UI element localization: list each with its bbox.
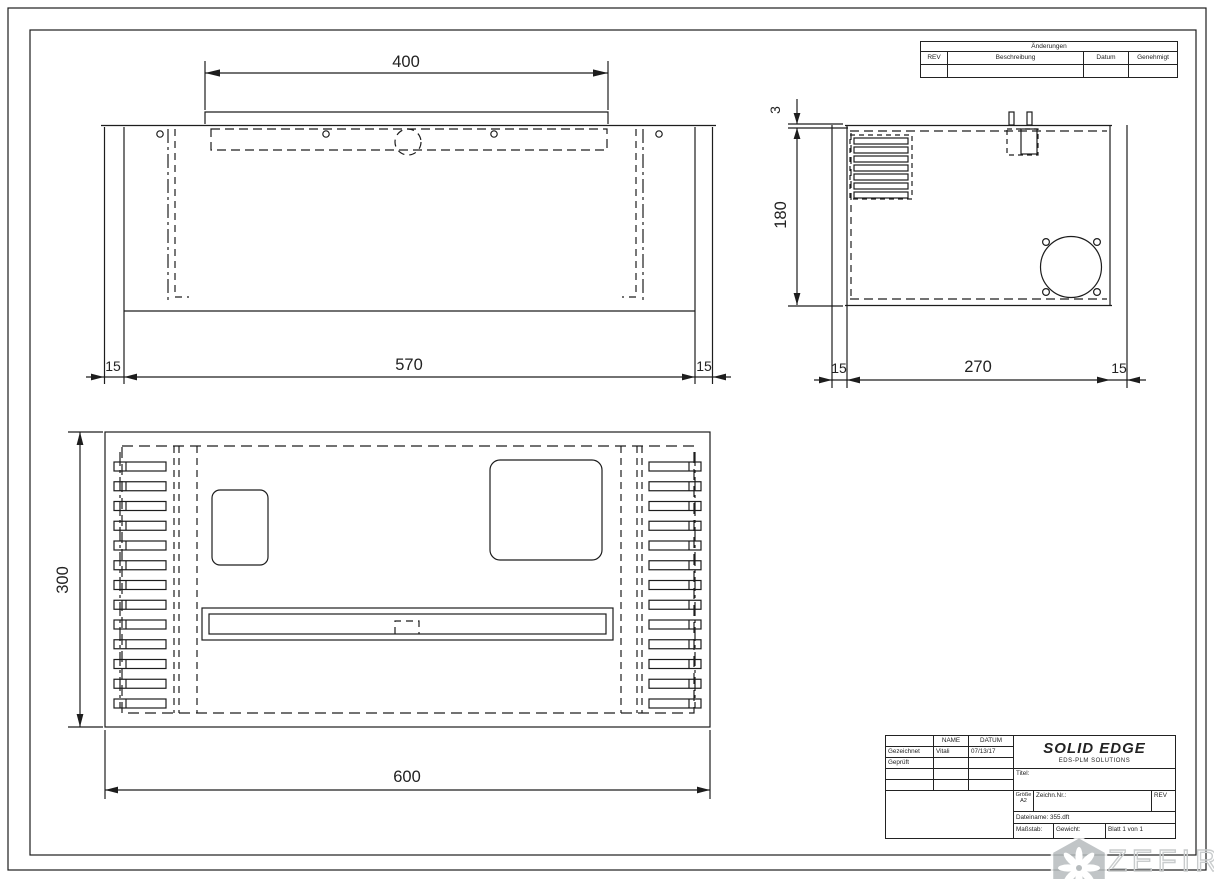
dim-side-right: 15 — [1111, 360, 1127, 376]
fan-screw-hole — [1043, 239, 1050, 246]
tb-dateiname: Dateiname: 355.dft — [1014, 812, 1175, 824]
vent-slot — [649, 640, 701, 649]
tb-empty-cell — [886, 780, 934, 790]
tb-gewicht-label: Gewicht: — [1054, 824, 1106, 838]
long-slot-inner — [209, 614, 606, 634]
tab — [1027, 112, 1032, 125]
louver-bars — [854, 138, 908, 198]
dim-front-mid: 570 — [395, 356, 423, 374]
dim-side-height: 180 — [772, 201, 790, 229]
tb-empty-cell — [934, 758, 969, 768]
changes-col-datum: Datum — [1084, 52, 1129, 64]
tb-empty-cell — [886, 769, 934, 779]
louver-bar — [854, 174, 908, 180]
vent-slot — [649, 521, 701, 530]
vent-slot — [649, 561, 701, 570]
louver-bar — [854, 138, 908, 144]
front-view: 400 15 570 15 — [86, 53, 731, 384]
tb-blank-cell — [886, 736, 934, 746]
tb-massstab-label: Maßstab: — [1014, 824, 1054, 838]
changes-table: Änderungen REV Beschreibung Datum Genehm… — [920, 41, 1178, 78]
cutout-small — [212, 490, 268, 565]
hidden-lip-outline — [211, 129, 607, 150]
fan-screw-hole — [1094, 289, 1101, 296]
mount-hole — [491, 131, 497, 137]
dim-front-right: 15 — [696, 358, 712, 374]
tb-name-header: NAME — [934, 736, 969, 746]
tb-blatt-label: Blatt 1 von 1 — [1106, 824, 1175, 838]
tb-titel-label: Titel: — [1014, 769, 1175, 791]
vent-slot — [649, 679, 701, 688]
hidden-connector — [1007, 129, 1038, 155]
tb-gezeichnet-datum: 07/13/17 — [969, 747, 1013, 757]
vent-slot — [649, 462, 701, 471]
dim-plan-left: 300 — [54, 566, 72, 594]
changes-empty-cell — [1129, 65, 1177, 77]
tb-gezeichnet-label: Gezeichnet — [886, 747, 934, 757]
vent-slot — [649, 620, 701, 629]
tb-groesse-cell: Größe A2 — [1014, 791, 1034, 811]
title-block: NAME DATUM Gezeichnet Vitali 07/13/17 Ge… — [885, 735, 1176, 839]
dim-plan-bottom: 600 — [393, 768, 421, 786]
hidden-center-hole — [395, 129, 421, 155]
tb-gezeichnet-name: Vitali — [934, 747, 969, 757]
tb-empty-cell — [934, 780, 969, 790]
louver-bar — [854, 183, 908, 189]
vent-slot — [649, 482, 701, 491]
vent-slot — [649, 600, 701, 609]
title-block-signatures: NAME DATUM Gezeichnet Vitali 07/13/17 Ge… — [886, 736, 1014, 838]
tb-geprueft-label: Geprüft — [886, 758, 934, 768]
louver-bar — [854, 192, 908, 198]
tb-zeichnr-label: Zeichn.Nr.: — [1034, 791, 1152, 811]
dim-side-mid: 270 — [964, 358, 992, 376]
dim-front-top: 400 — [392, 53, 420, 71]
mount-hole — [157, 131, 163, 137]
tab — [1009, 112, 1014, 125]
fan-screw-hole — [1043, 289, 1050, 296]
fan-hole — [1041, 237, 1102, 298]
tb-empty-cell — [969, 769, 1013, 779]
hidden-flange-outline — [122, 446, 694, 713]
changes-table-title: Änderungen — [921, 42, 1177, 52]
louver-bar — [854, 165, 908, 171]
vent-slot — [649, 541, 701, 550]
fan-screw-hole — [1094, 239, 1101, 246]
plan-view: 300 600 — [54, 432, 710, 799]
dim-side-left: 15 — [831, 360, 847, 376]
tb-rev-label: REV — [1152, 791, 1175, 811]
vent-slot — [649, 502, 701, 511]
changes-empty-cell — [921, 65, 948, 77]
side-view: 3 180 15 270 15 — [767, 99, 1146, 388]
hidden-bracket — [395, 621, 419, 634]
louver-bar — [854, 156, 908, 162]
tb-notes-cell — [886, 791, 1013, 838]
mount-hole — [323, 131, 329, 137]
logo-subtitle: EDS-PLM SOLUTIONS — [1014, 758, 1175, 765]
title-block-main: SOLID EDGE EDS-PLM SOLUTIONS Titel: Größ… — [1014, 736, 1175, 838]
dim-front-left: 15 — [105, 358, 121, 374]
tb-empty-cell — [934, 769, 969, 779]
vent-slot — [649, 581, 701, 590]
changes-empty-cell — [1084, 65, 1129, 77]
vent-slot — [649, 660, 701, 669]
plan-vent-slots-right — [649, 462, 701, 708]
tb-datum-header: DATUM — [969, 736, 1013, 746]
changes-col-rev: REV — [921, 52, 948, 64]
louver-bar — [854, 147, 908, 153]
changes-col-beschreibung: Beschreibung — [948, 52, 1084, 64]
solid-edge-logo: SOLID EDGE EDS-PLM SOLUTIONS — [1014, 736, 1175, 769]
dim-side-thickness: 3 — [767, 106, 783, 114]
changes-col-genehmigt: Genehmigt — [1129, 52, 1177, 64]
long-slot-outer — [202, 608, 613, 640]
mount-hole — [656, 131, 662, 137]
tb-empty-cell — [969, 758, 1013, 768]
tb-groesse-value: A2 — [1014, 798, 1033, 804]
logo-title: SOLID EDGE — [1014, 740, 1175, 757]
tb-empty-cell — [969, 780, 1013, 790]
vent-slot — [649, 699, 701, 708]
changes-empty-cell — [948, 65, 1084, 77]
connector-body — [1021, 129, 1037, 154]
cutout-large — [490, 460, 602, 560]
